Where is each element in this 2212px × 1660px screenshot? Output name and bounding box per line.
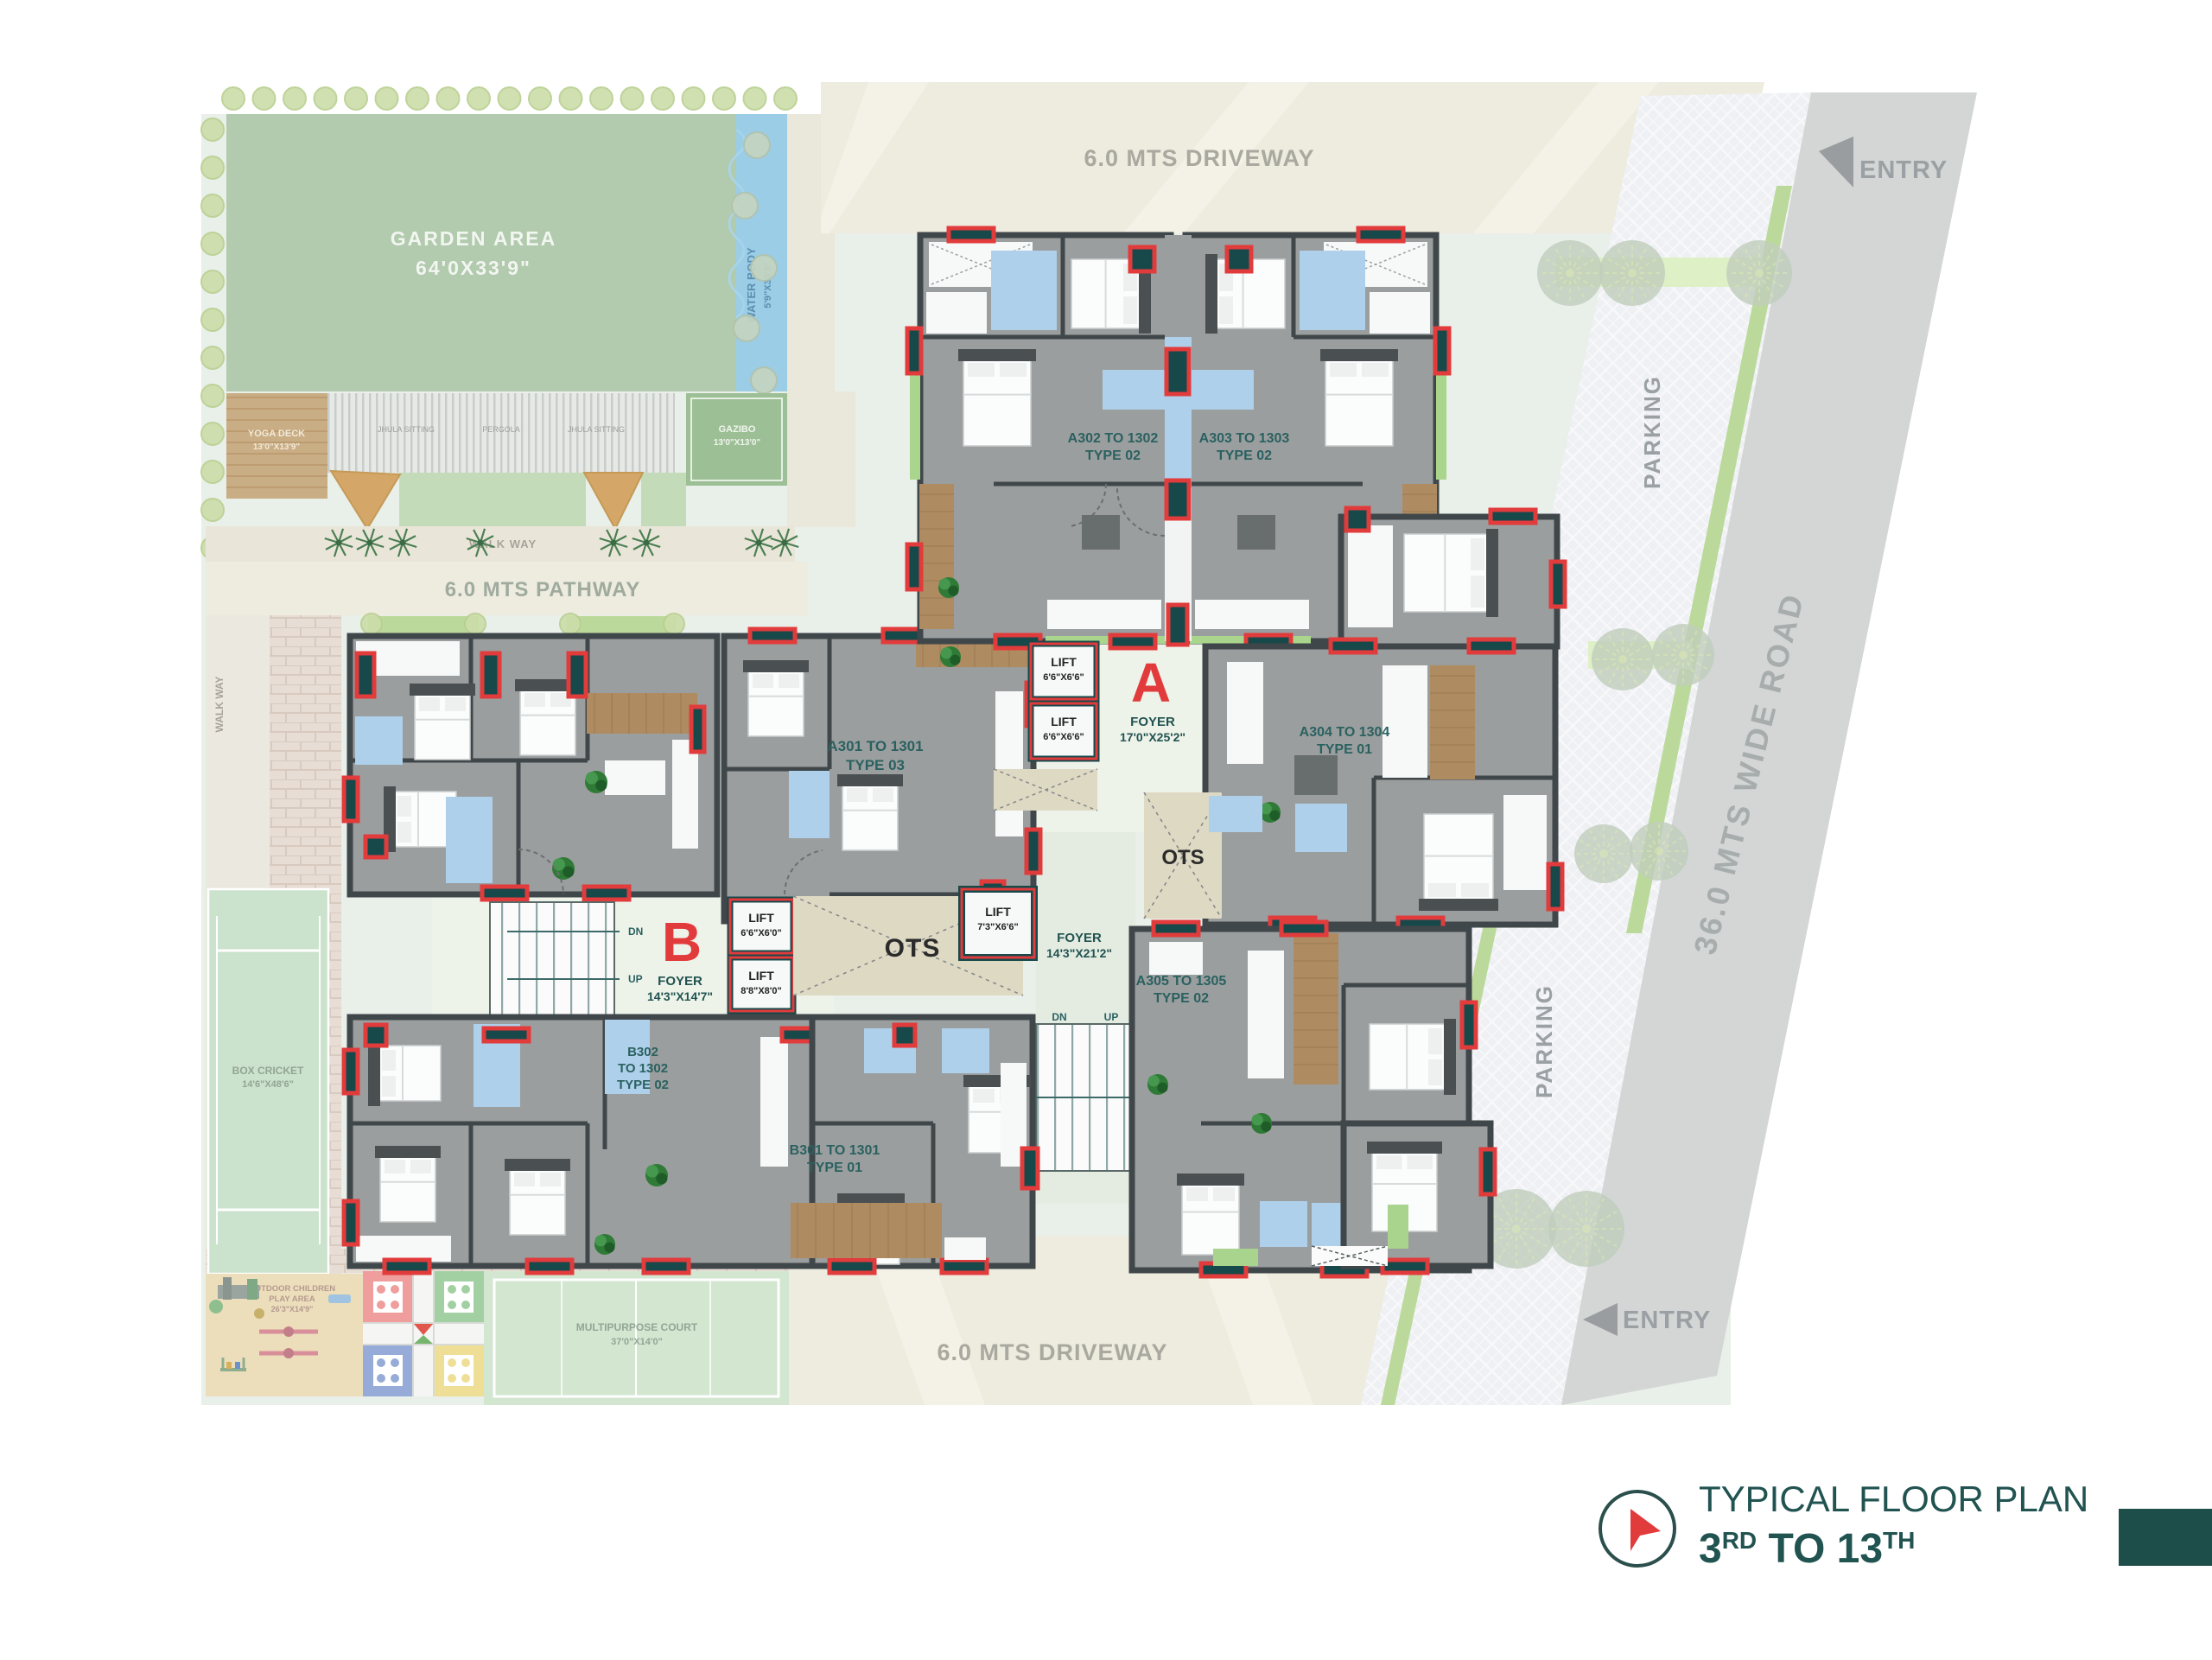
- svg-text:LIFT: LIFT: [748, 969, 774, 983]
- svg-text:OUTDOOR CHILDREN: OUTDOOR CHILDREN: [249, 1284, 335, 1294]
- svg-text:FOYER: FOYER: [1130, 715, 1175, 729]
- svg-text:6'6"X6'6": 6'6"X6'6": [1043, 672, 1084, 683]
- svg-text:DN: DN: [628, 925, 643, 938]
- svg-text:14'6"X48'6": 14'6"X48'6": [242, 1079, 294, 1090]
- svg-text:A: A: [1131, 652, 1171, 714]
- svg-text:PLAY AREA: PLAY AREA: [269, 1294, 315, 1304]
- svg-text:TYPICAL FLOOR PLAN: TYPICAL FLOOR PLAN: [1699, 1479, 2088, 1519]
- svg-text:B: B: [662, 911, 702, 973]
- svg-text:TYPE 02: TYPE 02: [617, 1078, 669, 1092]
- svg-text:FOYER: FOYER: [1057, 931, 1102, 945]
- svg-text:6.0 MTS PATHWAY: 6.0 MTS PATHWAY: [445, 578, 641, 601]
- svg-text:TYPE 01: TYPE 01: [1317, 742, 1372, 757]
- svg-text:OTS: OTS: [885, 934, 941, 963]
- svg-text:17'0"X25'2": 17'0"X25'2": [1120, 730, 1185, 744]
- svg-text:LIFT: LIFT: [1051, 655, 1077, 669]
- svg-text:TO 1302: TO 1302: [618, 1061, 668, 1076]
- svg-text:FOYER: FOYER: [658, 974, 702, 989]
- svg-text:13'0"X13'9": 13'0"X13'9": [253, 442, 301, 452]
- svg-text:37'0"X14'0": 37'0"X14'0": [611, 1337, 663, 1347]
- svg-text:JHULA SITTING: JHULA SITTING: [378, 425, 435, 434]
- svg-text:A304 TO 1304: A304 TO 1304: [1300, 725, 1390, 740]
- svg-text:ENTRY: ENTRY: [1859, 156, 1948, 184]
- svg-text:UP: UP: [628, 973, 643, 985]
- svg-text:6.0 MTS DRIVEWAY: 6.0 MTS DRIVEWAY: [1084, 145, 1314, 171]
- svg-text:A303 TO 1303: A303 TO 1303: [1199, 431, 1290, 446]
- svg-text:LIFT: LIFT: [1051, 715, 1077, 728]
- svg-text:13'0"X13'0": 13'0"X13'0": [714, 438, 761, 448]
- svg-text:MULTIPURPOSE COURT: MULTIPURPOSE COURT: [576, 1321, 698, 1333]
- svg-text:7'3"X6'6": 7'3"X6'6": [977, 922, 1018, 932]
- svg-text:TYPE 02: TYPE 02: [1085, 448, 1141, 463]
- svg-text:GARDEN AREA: GARDEN AREA: [391, 227, 556, 250]
- svg-text:PARKING: PARKING: [1639, 375, 1665, 489]
- svg-text:YOGA DECK: YOGA DECK: [248, 429, 305, 439]
- svg-text:A301 TO 1301: A301 TO 1301: [827, 738, 923, 754]
- svg-text:14'3"X21'2": 14'3"X21'2": [1046, 946, 1112, 960]
- svg-text:B302: B302: [627, 1045, 658, 1059]
- svg-text:14'3"X14'7": 14'3"X14'7": [647, 989, 713, 1003]
- svg-text:TYPE 02: TYPE 02: [1217, 448, 1272, 463]
- svg-text:GAZIBO: GAZIBO: [719, 424, 756, 435]
- svg-text:LIFT: LIFT: [985, 905, 1011, 919]
- svg-text:6'6"X6'6": 6'6"X6'6": [1043, 732, 1084, 742]
- svg-text:TYPE 03: TYPE 03: [846, 757, 905, 773]
- svg-text:64'0X33'9": 64'0X33'9": [416, 257, 531, 279]
- svg-text:JHULA SITTING: JHULA SITTING: [568, 425, 625, 434]
- svg-text:A305 TO 1305: A305 TO 1305: [1136, 974, 1227, 989]
- svg-text:PARKING: PARKING: [1531, 984, 1557, 1098]
- svg-text:TYPE 01: TYPE 01: [807, 1161, 862, 1175]
- svg-text:A302 TO 1302: A302 TO 1302: [1068, 431, 1159, 446]
- svg-text:WALK WAY: WALK WAY: [213, 677, 226, 733]
- svg-text:TYPE 02: TYPE 02: [1154, 991, 1209, 1006]
- svg-text:8'8"X8'0": 8'8"X8'0": [741, 986, 781, 996]
- svg-text:6'6"X6'0": 6'6"X6'0": [741, 928, 781, 938]
- svg-text:UP: UP: [1104, 1011, 1119, 1023]
- svg-text:BOX CRICKET: BOX CRICKET: [232, 1065, 304, 1077]
- svg-text:DN: DN: [1052, 1011, 1066, 1023]
- svg-text:6.0 MTS DRIVEWAY: 6.0 MTS DRIVEWAY: [937, 1339, 1167, 1365]
- svg-text:B301 TO 1301: B301 TO 1301: [790, 1143, 880, 1158]
- svg-text:26'3"X14'9": 26'3"X14'9": [271, 1305, 314, 1313]
- svg-text:LIFT: LIFT: [748, 911, 774, 925]
- svg-text:ENTRY: ENTRY: [1623, 1307, 1711, 1334]
- svg-text:OTS: OTS: [1161, 846, 1204, 869]
- svg-text:PERGOLA: PERGOLA: [482, 425, 520, 434]
